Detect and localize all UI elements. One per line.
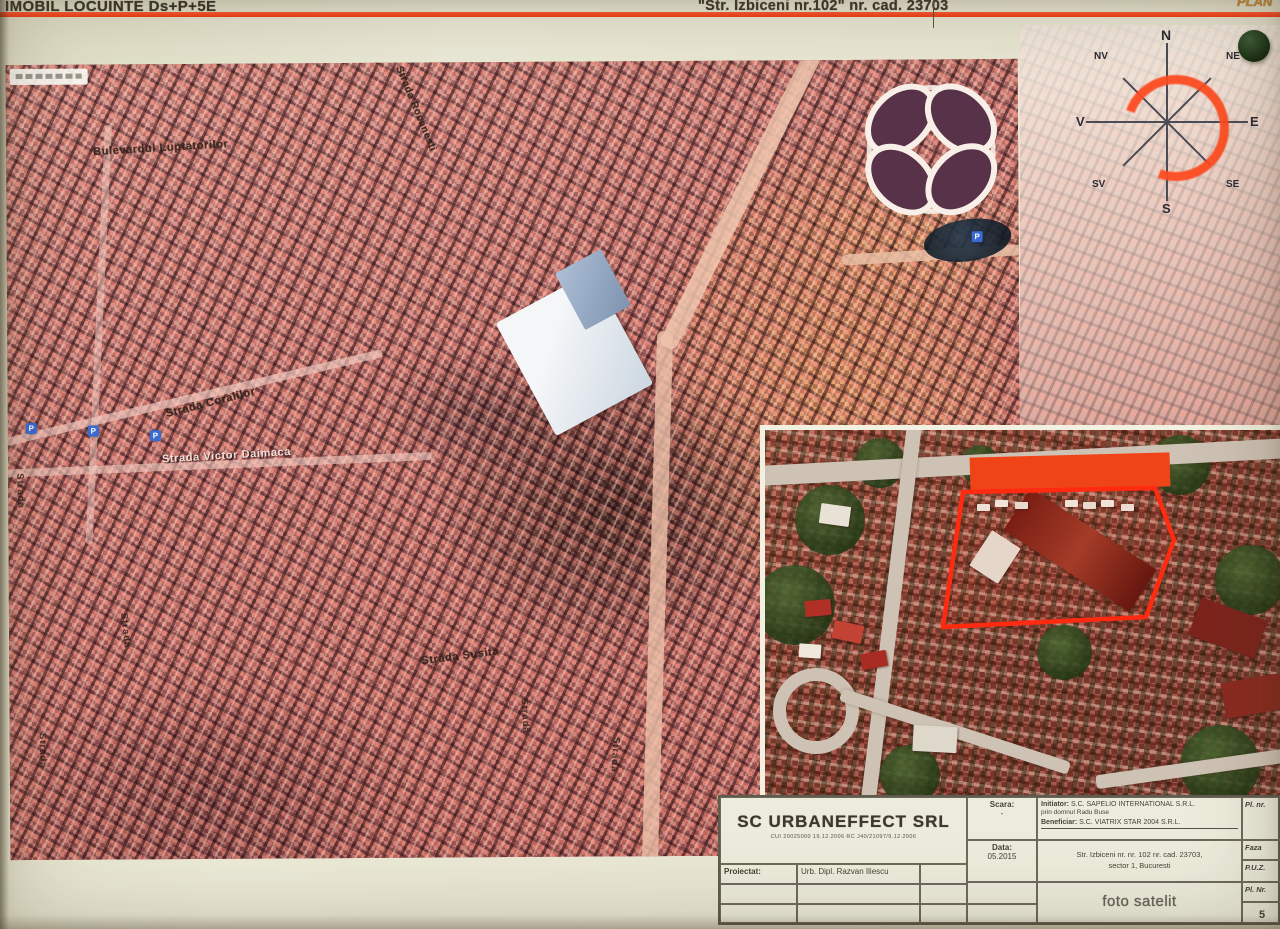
main-road-lower [642, 331, 674, 860]
compass-label-s: S [1162, 201, 1171, 216]
plot-boundary-outline [765, 430, 1280, 795]
street-label-vertical-4: Strada [518, 698, 531, 734]
title-block: SC URBANEFFECT SRL CUI 20025000 19.12.20… [718, 795, 1280, 925]
parking-icon: P [26, 423, 37, 434]
signature-cell [920, 864, 967, 884]
parking-icon: P [972, 231, 983, 242]
empty-cell [920, 884, 967, 904]
empty-cell [797, 904, 920, 923]
street-label-rocanesti: Strada Rocanesti [393, 65, 438, 154]
scara-cell: Scara: - [967, 797, 1037, 840]
pl-nr2-cell: Pl. Nr. [1242, 882, 1280, 902]
inset-detail-map [760, 425, 1280, 800]
initiator-line: Initiator: S.C. SAPELIO INTERNATIONAL S.… [1041, 800, 1238, 809]
empty-cell [920, 904, 967, 923]
compass-label-e: E [1250, 114, 1259, 129]
data-label: Data: [971, 843, 1033, 852]
street-label-susita: Strada Susita [421, 645, 500, 667]
street-label-vertical-2: Strada [118, 612, 133, 649]
drawing-title-cell: foto satelit [1037, 882, 1242, 923]
beneficiar-line: Beneficiar: S.C. VIATRIX STAR 2004 S.R.L… [1041, 818, 1238, 828]
initiator-beneficiar-cell: Initiator: S.C. SAPELIO INTERNATIONAL S.… [1037, 797, 1242, 840]
data-cell: Data: 05.2015 [967, 840, 1037, 882]
empty-cell [967, 882, 1037, 904]
watermark-smudge [16, 74, 82, 79]
orange-marker-circle [1106, 58, 1247, 199]
flower-building [846, 67, 1017, 233]
beneficiar-label: Beneficiar: [1041, 819, 1077, 826]
compass-label-nv: NV [1094, 51, 1108, 62]
map-watermark [10, 69, 88, 85]
sheet-title-address: "Str. Izbiceni nr.102" nr. cad. 23703 [698, 0, 949, 14]
scara-label: Scara: [971, 800, 1033, 809]
sheet-title-left: IMOBIL LOCUINTE Ds+P+5E [5, 0, 216, 15]
address-cell: Str. Izbiceni nr. nr. 102 nr. cad. 23703… [1037, 840, 1242, 882]
initiator-label: Initiator: [1041, 801, 1069, 808]
street-label-vertical-5: Strada [608, 737, 621, 773]
proiectat-value-cell: Urb. Dipl. Razvan Iliescu [797, 864, 920, 884]
proiectat-label-cell: Proiectat: [720, 864, 797, 884]
compass-label-sv: SV [1092, 179, 1105, 190]
compass-label-se: SE [1226, 179, 1239, 190]
puz-cell: P.U.Z. [1242, 860, 1280, 882]
coralilor-road [6, 349, 384, 447]
green-board-pin [1238, 30, 1270, 62]
photographed-plan-sheet: IMOBIL LOCUINTE Ds+P+5E "Str. Izbiceni n… [0, 0, 1280, 929]
data-value: 05.2015 [971, 852, 1033, 861]
street-label-vertical-1: Strada [14, 473, 26, 509]
sheet-number-cell: 5 [1242, 902, 1280, 923]
street-label-vertical-3: Strada [37, 733, 49, 769]
sheet-corner-label: PLAN [1237, 0, 1272, 9]
street-label-luptatorilor: Bulevardul Luptatorilor [93, 138, 229, 158]
empty-cell [967, 904, 1037, 923]
empty-cell [797, 884, 920, 904]
main-road-upper [658, 59, 822, 351]
compass-label-n: N [1161, 27, 1171, 43]
pl-nr-cell: Pl. nr. [1242, 797, 1280, 840]
scara-value: - [971, 809, 1033, 818]
parking-icon: P [88, 426, 99, 437]
company-cell: SC URBANEFFECT SRL CUI 20025000 19.12.20… [720, 797, 967, 864]
address-line-1: Str. Izbiceni nr. nr. 102 nr. cad. 23703… [1038, 849, 1241, 860]
company-registration: CUI 20025000 19.12.2006 RC J40/21097/9.1… [721, 834, 966, 840]
initiator-line-2: prin domnul Radu Buse [1041, 809, 1238, 818]
left-vertical-road [86, 125, 112, 545]
company-name: SC URBANEFFECT SRL [721, 812, 966, 832]
empty-cell [720, 904, 797, 923]
beneficiar-value: S.C. VIATRIX STAR 2004 S.R.L. [1079, 819, 1180, 826]
empty-cell [720, 884, 797, 904]
address-line-2: sector 1, Bucuresti [1038, 860, 1241, 871]
faza-cell: Faza [1242, 840, 1280, 860]
initiator-value: S.C. SAPELIO INTERNATIONAL S.R.L. [1071, 801, 1195, 808]
parking-icon: P [150, 430, 161, 441]
compass-label-v: V [1076, 114, 1085, 129]
header-divider-line [933, 0, 934, 28]
compass-rose: N S E V NV NE SV SE [1082, 37, 1252, 207]
compass-label-ne: NE [1226, 51, 1240, 62]
